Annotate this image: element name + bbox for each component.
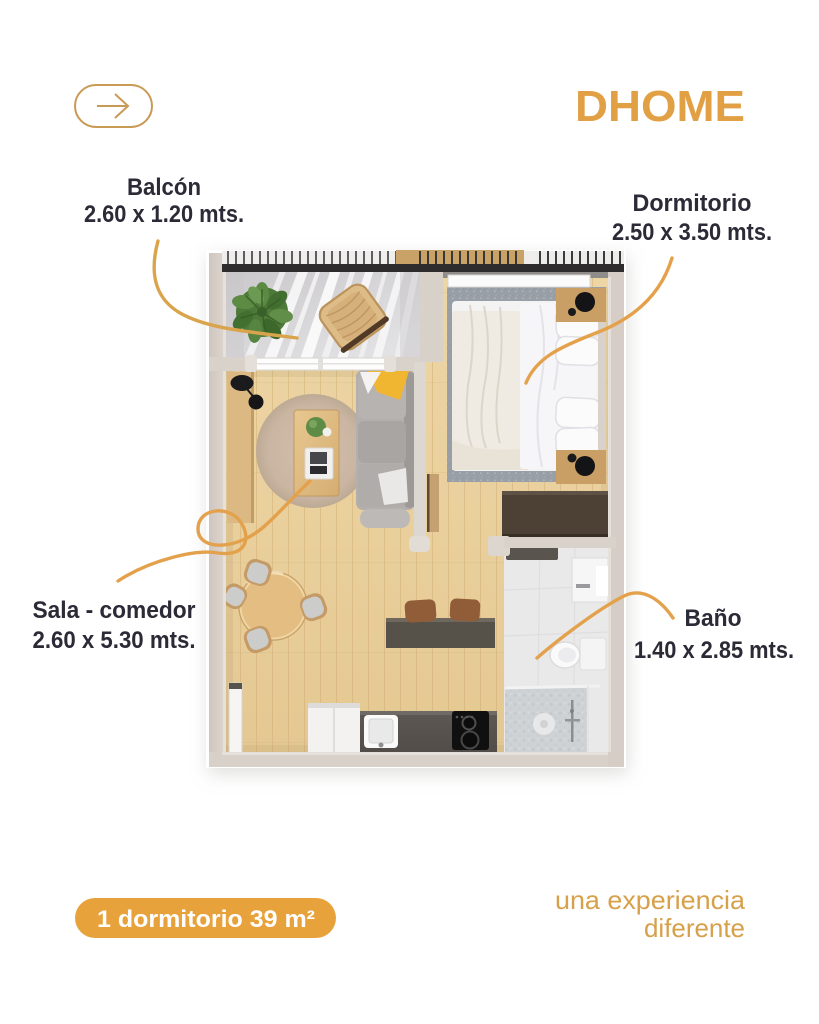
svg-text:1.40 x 2.85 mts.: 1.40 x 2.85 mts. [634,637,794,664]
svg-text:diferente: diferente [644,913,745,943]
svg-text:1 dormitorio 39 m²: 1 dormitorio 39 m² [97,906,315,933]
svg-text:Sala - comedor: Sala - comedor [33,597,196,624]
svg-text:2.60 x 1.20 mts.: 2.60 x 1.20 mts. [84,201,244,228]
svg-text:2.60 x 5.30 mts.: 2.60 x 5.30 mts. [33,627,196,654]
svg-text:Dormitorio: Dormitorio [633,190,752,217]
svg-text:Baño: Baño [685,605,742,632]
svg-text:2.50 x 3.50 mts.: 2.50 x 3.50 mts. [612,219,772,246]
svg-text:una experiencia: una experiencia [555,885,746,915]
svg-text:Balcón: Balcón [127,174,201,201]
svg-text:DHOME: DHOME [575,82,745,131]
